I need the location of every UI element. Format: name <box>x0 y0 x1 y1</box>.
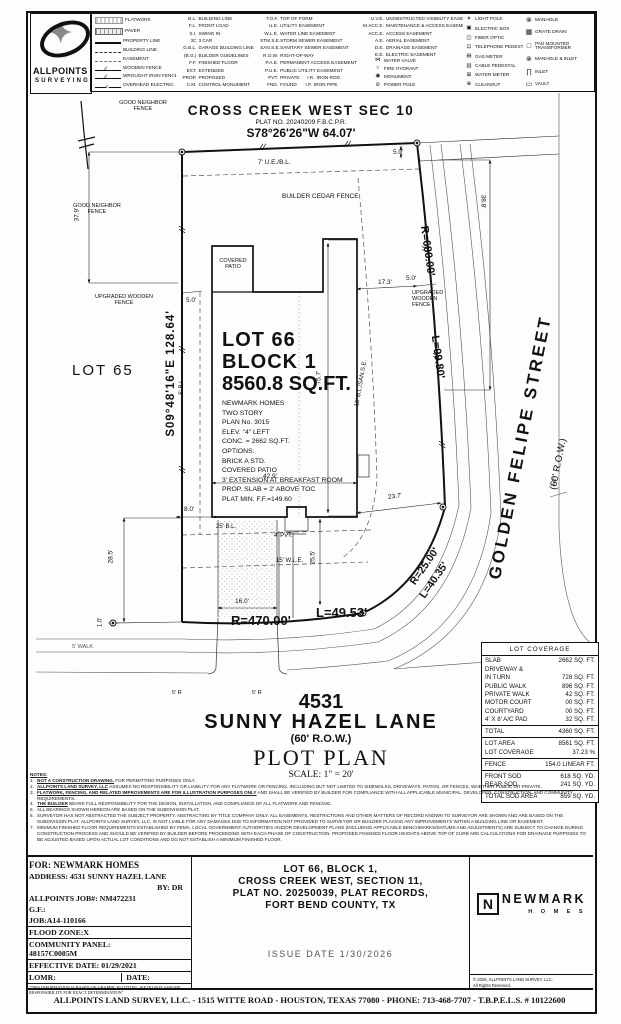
adjacent-lot-label: LOT 65 <box>72 363 134 380</box>
abbr: D.E. <box>360 46 384 51</box>
abbr: F.L. <box>178 24 196 29</box>
legend-item: PAD MOUNTED TRANSFORMER <box>525 42 590 51</box>
term: BUILDING LINE <box>198 17 232 22</box>
abbr: M.ACC.E. <box>360 24 384 29</box>
block-number: BLOCK 1 <box>222 351 317 373</box>
note-number: 7. <box>30 825 37 843</box>
term: PERMANENT ACCESS EASEMENT <box>280 61 357 66</box>
cov-label: TOTAL <box>485 728 504 735</box>
legend-label: PAD MOUNTED TRANSFORMER <box>535 42 590 51</box>
notes-section: NOTES: 1. NOT A CONSTRUCTION DRAWING. FO… <box>30 772 588 843</box>
abbr2: I.R. <box>305 76 315 81</box>
dim-8-0: 8.0' <box>184 506 194 513</box>
abbr: B.L. <box>178 17 196 22</box>
legend-label: BUILDING LINE <box>123 48 157 53</box>
cov-value: 42 SQ. FT. <box>565 691 595 698</box>
legend-label: EASEMENT <box>123 57 149 62</box>
legend-label: ELECTRIC BOX <box>475 27 509 32</box>
legend-item: STM.S.E. STORM SEWER EASEMENT <box>260 39 356 44</box>
dim-28-5: 28.5' <box>107 550 114 564</box>
newmark-homes: H O M E S <box>502 909 586 915</box>
legend-item: S.I. SWING IN <box>178 32 256 37</box>
note-lead: NOT A CONSTRUCTION DRAWING. <box>37 778 114 783</box>
legend-symbol-icon <box>525 81 533 88</box>
legend-symbol-icon <box>374 66 382 72</box>
legend-label: VAULT <box>535 82 549 87</box>
legend-item: ELECTRIC BOX <box>465 26 521 32</box>
legend-symbol-icon <box>465 54 473 60</box>
linetype-icon <box>95 17 123 24</box>
legend-item: C.M. CONTROL MONUMENT <box>178 83 256 88</box>
issue-date: ISSUE DATE 1/30/2026 <box>192 948 469 960</box>
abbr: (B.G.) <box>178 54 196 59</box>
legend-item: G.B.L. GARAGE BUILDING LINE <box>178 46 256 51</box>
legend-label: LIGHT POLE <box>475 17 503 22</box>
dim-38-8: 38.8' <box>479 195 486 209</box>
legend-symbol-icon <box>465 64 473 70</box>
legend-item: B.L. BUILDING LINE <box>178 17 256 22</box>
legend-item: POWER POLE <box>360 83 461 89</box>
legend-label: MANHOLE <box>535 18 558 23</box>
term: RIGHT-OF-WAY <box>280 54 314 59</box>
upgraded-wooden-fence-label: UPGRADED WOODENFENCE <box>84 294 164 306</box>
legend-symbol-icon <box>374 83 382 89</box>
legend-item: P.U.E. PUBLIC UTILITY EASEMENT <box>260 69 356 74</box>
abbr: W.L.E. <box>260 32 278 37</box>
note-text: BEARS FULL RESPONSIBILITY FOR THE DESIGN… <box>68 801 332 806</box>
term: DRAINAGE EASEMENT <box>386 46 438 51</box>
legend-symbol-icon <box>465 17 473 23</box>
spec-line: NEWMARK HOMES <box>222 399 343 409</box>
legend-symbol-icon <box>525 56 533 63</box>
abbr: R.O.W. <box>260 54 278 59</box>
panel-label: COMMUNITY PANEL: <box>29 940 188 949</box>
legend-item: PROP. PROPOSED <box>178 76 256 81</box>
term: EXTENDED <box>198 69 224 74</box>
legend-symbol-icon <box>465 26 473 32</box>
legend-item: GRATE DRAIN <box>525 29 590 36</box>
legend-symbol-icon <box>465 45 473 51</box>
abbr: A.E. <box>360 39 384 44</box>
linetype-icon <box>95 52 121 53</box>
spec-line: PROP. SLAB = 2' ABOVE TOC <box>222 485 343 495</box>
cov-label: SLAB <box>485 657 501 664</box>
upgraded-wooden-fence-label: UPGRADEDWOODENFENCE <box>412 290 443 308</box>
cov-value: 00 SQ. FT. <box>565 708 595 715</box>
abbr: F.F. <box>178 61 196 66</box>
legend-label: FIRE HYDRANT <box>384 67 419 72</box>
plot-plan-title: PLOT PLAN <box>166 746 476 770</box>
legend-label: CLEANOUT <box>475 83 501 88</box>
term2: IRON PIPE <box>314 83 338 88</box>
note-text: ALL BEARINGS SHOWN HEREON ARE BASED ON T… <box>37 807 200 812</box>
cov-label: PUBLIC WALK <box>485 683 526 690</box>
good-neighbor-fence-label: GOOD NEIGHBORFENCE <box>102 100 184 112</box>
term: FOUND <box>280 83 297 88</box>
power-pole-icon <box>78 101 95 169</box>
legend-symbol-icon <box>525 43 533 50</box>
builder-cedar-fence-label: BUILDER CEDAR FENCE <box>282 193 359 200</box>
walk-label: 5' WALK <box>72 644 93 650</box>
cov-value: 37.23 % <box>572 749 595 756</box>
legend-label: GAS METER <box>475 55 503 60</box>
term: FINISHED FLOOR <box>198 61 237 66</box>
address-number-title: 4531 <box>166 691 476 713</box>
legend-item: FND. FOUND I.P. IRON PIPE <box>260 83 356 88</box>
legend-symbol-icon <box>465 36 473 42</box>
logo-line2: SURVEYING <box>35 78 90 84</box>
abbr: U.V.E. <box>360 17 384 22</box>
legend-item: EASEMENT <box>95 57 174 62</box>
subdivision-title: CROSS CREEK WEST SEC 10 <box>146 104 456 119</box>
term: AERIAL EASEMENT <box>386 39 430 44</box>
term2: IRON ROD <box>317 76 340 81</box>
term: STORM SEWER EASEMENT <box>280 39 342 44</box>
cov-label: DRIVEWAY & <box>485 666 523 673</box>
abbr: PVT. <box>260 76 278 81</box>
cov-label: IN TURN <box>485 674 510 681</box>
newmark-n-icon: N <box>477 893 499 915</box>
private-walk-label: 4' PVT. <box>274 533 293 540</box>
term: TOP OF FORM <box>280 17 312 22</box>
curve-r470: R=470.00' <box>231 614 291 628</box>
gf-row: G.F.: <box>26 904 191 915</box>
utility-easement-label: 7' U.E./B.L. <box>258 159 291 166</box>
legend-item: VAULT <box>525 81 590 88</box>
linetype-icon <box>95 87 121 88</box>
legend-item: GAS METER <box>465 54 521 60</box>
job-number-row: ALLPOINTS JOB#: NM472231 <box>26 893 191 904</box>
lot-number: LOT 66 <box>222 329 296 351</box>
legend-label: INLET <box>535 70 548 75</box>
builder-brand-block: N NEWMARK H O M E S © 2026, ALLPOINTS LA… <box>469 857 593 990</box>
legend-item: F.F. FINISHED FLOOR <box>178 61 256 66</box>
legend-item: M.ACC.E. MAINTENANCE & ACCESS EASEMENT <box>360 24 461 29</box>
newmark-logo: N NEWMARK H O M E S <box>470 893 593 915</box>
note-text: SURVEYOR HAS NOT ABSTRACTED THE SUBJECT … <box>37 813 563 824</box>
cov-label: COURTYARD <box>485 708 524 715</box>
by-row: BY: DR <box>26 882 191 893</box>
cov-label: PRIVATE WALK <box>485 691 530 698</box>
linetype-icon <box>95 61 121 62</box>
note-number: 6. <box>30 813 37 825</box>
legend-item: W.L.E. WATER LINE EASEMENT <box>260 32 356 37</box>
cov-value: 8561 SQ. FT. <box>559 740 595 747</box>
abbr: ACC.E. <box>360 32 384 37</box>
legend-item: MANHOLE & INLET <box>525 56 590 63</box>
note-lead: ALLPOINTS LAND SURVEY, LLC <box>37 784 108 789</box>
street-name-title: SUNNY HAZEL LANE <box>166 711 476 733</box>
legend-symbol-icon <box>525 17 533 24</box>
abbr: EXT. <box>178 69 196 74</box>
abbr: C.M. <box>178 83 196 88</box>
legend-label: PROPERTY LINE <box>123 39 160 44</box>
term: SWING IN <box>198 32 220 37</box>
legend-symbols-col4: LIGHT POLE ELECTRIC BOX FIBER OPTIC TELE… <box>463 16 523 89</box>
abbr: STM.S.E. <box>260 39 278 44</box>
legend-label: POWER POLE <box>384 83 416 88</box>
legend-item: MANHOLE <box>525 17 590 24</box>
legend-item: EXT. EXTENDED <box>178 69 256 74</box>
cov-label: MOTOR COURT <box>485 699 532 706</box>
term: PROPOSED <box>198 76 225 81</box>
lot-area: 8560.8 SQ.FT. <box>222 373 351 395</box>
legal-line: FORT BEND COUNTY, TX <box>192 900 469 912</box>
abbr2: I.P. <box>302 83 312 88</box>
term: MAINTENANCE & ACCESS EASEMENT <box>386 24 463 29</box>
term: 3 CAR <box>198 39 212 44</box>
note-item: 6. SURVEYOR HAS NOT ABSTRACTED THE SUBJE… <box>30 813 588 825</box>
legend-item: BUILDING LINE <box>95 48 174 53</box>
legend-symbol-icon <box>525 69 533 76</box>
legend-symbol-icon <box>374 74 382 80</box>
term: UNOBSTRUCTED VISIBILITY EASEMENT <box>386 17 463 22</box>
legend-item: P.A.E. PERMANENT ACCESS EASEMENT <box>260 61 356 66</box>
abbr: U.E. <box>260 24 278 29</box>
legend-symbol-icon <box>465 82 473 88</box>
house-specs: NEWMARK HOMESTWO STORYPLAN No. 3015ELEV.… <box>222 399 343 505</box>
legend-item: D.E. DRAINAGE EASEMENT <box>360 46 461 51</box>
linetype-icon <box>95 70 121 71</box>
legend-item: U.E. UTILITY EASEMENT <box>260 24 356 29</box>
dim-1-0-left: 1.0' <box>97 618 104 628</box>
legend-item: TELEPHONE PEDESTAL <box>465 45 521 51</box>
logo-line1: ALLPOINTS <box>33 66 88 76</box>
legend-label: MANHOLE & INLET <box>535 57 577 62</box>
west-bearing: S09°48'16"E 128.64' <box>165 286 178 461</box>
dim-5-0-top: 5.0' <box>393 149 403 156</box>
legend-symbol-icon <box>465 73 473 79</box>
abbr: FND. <box>260 83 278 88</box>
abbr: S.I. <box>178 32 196 37</box>
note-item: 3. FLATWORK, FENCING, AND RELATED IMPROV… <box>30 790 588 802</box>
legend-item: CABLE PEDESTAL <box>465 64 521 70</box>
term: UTILITY EASEMENT <box>280 24 324 29</box>
legend-symbol-icon <box>374 58 382 64</box>
community-panel-row: COMMUNITY PANEL: 48157C0085M <box>26 939 191 960</box>
spec-line: TWO STORY <box>222 409 343 419</box>
legend-item: PAVER <box>95 28 174 35</box>
legend-symbols-col5: MANHOLE GRATE DRAIN PAD MOUNTED TRANSFOR… <box>523 16 592 89</box>
term: ACCESS EASEMENT <box>386 32 432 37</box>
building-line-5: 5' B.L. <box>179 378 186 395</box>
legend-item: WATER METER <box>465 73 521 79</box>
spec-line: CONC. = 2662 SQ.FT. <box>222 437 343 447</box>
curve-l49-53: L=49.53' <box>316 606 367 620</box>
survey-drawing: CROSS CREEK WEST SEC 10 PLAT NO. 2024020… <box>26 93 593 855</box>
dim-42-9: 42.9' <box>263 473 277 480</box>
swoosh-icon <box>35 13 92 64</box>
legend-label: WATER METER <box>475 73 509 78</box>
term: GARAGE BUILDING LINE <box>198 46 253 51</box>
legend-item: F.L. FRONT LOAD <box>178 24 256 29</box>
spec-line: COVERED PATIO <box>222 466 343 476</box>
term: CONTROL MONUMENT <box>198 83 250 88</box>
legal-description-block: LOT 66, BLOCK 1, CROSS CREEK WEST, SECTI… <box>192 857 469 990</box>
legend-abbrev-col3: U.V.E. UNOBSTRUCTED VISIBILITY EASEMENT … <box>358 16 463 89</box>
project-info-block: FOR: NEWMARK HOMES ADDRESS: 4531 SUNNY H… <box>26 857 192 990</box>
legend-item: R.O.W. RIGHT-OF-WAY <box>260 54 356 59</box>
cov-label: LOT COVERAGE <box>485 749 534 756</box>
linetype-icon <box>95 28 123 35</box>
street-row-title: (60' R.O.W.) <box>166 733 476 745</box>
dim-75-7: 75.7' <box>315 371 322 385</box>
legend-label: WROUGHT IRON FENCE <box>123 74 176 79</box>
surveyor-footer: ALLPOINTS LAND SURVEY, LLC. - 1515 WITTE… <box>26 988 593 1012</box>
lomr-row: LOMR: DATE: <box>26 972 191 984</box>
legend-item: U.V.E. UNOBSTRUCTED VISIBILITY EASEMENT <box>360 17 461 22</box>
client-row: FOR: NEWMARK HOMES <box>26 857 191 871</box>
legend-label: OVERHEAD ELECTRIC <box>123 83 174 88</box>
term: SANITARY SEWER EASEMENT <box>280 46 349 51</box>
legend-item: FLATWORK <box>95 17 174 24</box>
legend-label: TELEPHONE PEDESTAL <box>475 45 523 50</box>
cov-label: LOT AREA <box>485 740 515 747</box>
note-item: 7. MINIMUM FINISHED FLOOR REQUIREMENTS E… <box>30 825 588 843</box>
legend-item: PROPERTY LINE <box>95 38 174 44</box>
covered-patio-label: COVEREDPATIO <box>212 258 254 270</box>
job2-row: JOB:A14-110166 <box>26 915 191 927</box>
spec-line: PLAT MIN. F.F.=149.60 <box>222 495 343 505</box>
legend-item: SAN.S.E. SANITARY SEWER EASEMENT <box>260 46 356 51</box>
legend-item: (B.G.) BUILDER GUIDELINES <box>178 54 256 59</box>
abbr: SAN.S.E. <box>260 46 278 51</box>
legend: FLATWORK PAVER PROPERTY LINE BUILDING LI… <box>90 13 595 92</box>
note-number: 3. <box>30 790 37 802</box>
cov-value: 2662 SQ. FT. <box>559 657 595 664</box>
cov-value: 154.0 LINEAR FT. <box>545 761 595 768</box>
legend-item: INLET <box>525 69 590 76</box>
dim-25-5: 25.5' <box>309 551 316 565</box>
dim-5-0-left: 5.0' <box>186 297 196 304</box>
abbr: G.B.L. <box>178 46 196 51</box>
building-line-25: 25' B.L. <box>216 524 236 531</box>
cov-value: 728 SQ. FT. <box>562 674 595 681</box>
abbr: T.O.F. <box>260 17 278 22</box>
abbr: PROP. <box>178 76 196 81</box>
abbr: P.U.E. <box>260 69 278 74</box>
cov-value: 32 SQ. FT. <box>565 716 595 723</box>
allpoints-logo: ✦ ALLPOINTS SURVEYING <box>30 13 92 94</box>
legend-item: A.E. AERIAL EASEMENT <box>360 39 461 44</box>
newmark-name: NEWMARK <box>502 893 586 906</box>
abbr: 3C <box>178 39 196 44</box>
legend-abbrev-col2: T.O.F. TOP OF FORM U.E. UTILITY EASEMENT… <box>258 16 358 89</box>
panel-value: 48157C0085M <box>29 949 188 958</box>
spec-line: BRICK A STD. <box>222 457 343 467</box>
linetype-icon <box>95 78 121 79</box>
legend-symbol-icon <box>525 29 533 36</box>
legend-item: WATER VALVE <box>360 58 461 64</box>
note-text: ASSUMES NO RESPONSIBILITY OR LIABILITY F… <box>108 784 542 789</box>
lot-coverage-title: LOT COVERAGE <box>482 643 598 656</box>
term: PUBLIC UTILITY EASEMENT <box>280 69 343 74</box>
cov-value: 00 SQ. FT. <box>565 699 595 706</box>
legend-item: FIRE HYDRANT <box>360 66 461 72</box>
dim-16-0: 16.0' <box>235 598 249 605</box>
spec-line: OPTIONS: <box>222 447 343 457</box>
legend-item: T.O.F. TOP OF FORM <box>260 17 356 22</box>
flood-zone-row: FLOOD ZONE:X <box>26 927 191 939</box>
cov-value: 4360 SQ. FT. <box>559 728 595 735</box>
abbr: P.A.E. <box>260 61 278 66</box>
good-neighbor-fence-label: GOOD NEIGHBORFENCE <box>56 203 138 215</box>
legend-item: MONUMENT <box>360 74 461 80</box>
legend-item: 3C 3 CAR <box>178 39 256 44</box>
title-block-row: FOR: NEWMARK HOMES ADDRESS: 4531 SUNNY H… <box>26 855 593 990</box>
legend-label: WATER VALVE <box>384 59 416 64</box>
north-bearing: S78°26'26"W 64.07' <box>146 127 456 140</box>
dim-5-0-right: 5.0' <box>406 275 416 282</box>
term: FRONT LOAD <box>198 24 228 29</box>
legend-label: GRATE DRAIN <box>535 30 567 35</box>
legal-line: CROSS CREEK WEST, SECTION 11, <box>192 876 469 888</box>
spec-line: 3' EXTENSION AT BREAKFAST ROOM <box>222 476 343 486</box>
legend-item: ACC.E. ACCESS EASEMENT <box>360 32 461 37</box>
legend-item: WOODEN FENCE <box>95 66 174 71</box>
legend-item: LIGHT POLE <box>465 17 521 23</box>
plot-plan-page: ✦ ALLPOINTS SURVEYING FLATWORK PAVER PRO… <box>0 0 621 1024</box>
cov-label: 4' X 8' A/C PAD <box>485 716 527 723</box>
note-text: MINIMUM FINISHED FLOOR REQUIREMENTS ESTA… <box>37 825 586 842</box>
note-text: FOR PERMITTING PURPOSES ONLY. <box>114 778 196 783</box>
cov-label: FENCE <box>485 761 506 768</box>
note-lead: THE BUILDER <box>37 801 68 806</box>
lomr-label: LOMR: <box>29 973 122 982</box>
legend-label: PAVER <box>125 29 140 34</box>
cov-value: 896 SQ. FT. <box>562 683 595 690</box>
spec-line: ELEV. "4" LEFT <box>222 428 343 438</box>
note-lead: FLATWORK, FENCING, AND RELATED IMPROVEME… <box>37 790 256 795</box>
legend-label: FIBER OPTIC <box>475 36 504 41</box>
legend-item: OVERHEAD ELECTRIC <box>95 83 174 88</box>
effective-date-row: EFFECTIVE DATE: 01/29/2021 <box>26 960 191 972</box>
address-row: ADDRESS: 4531 SUNNY HAZEL LANE <box>26 871 191 882</box>
legend-abbrev-col1: B.L. BUILDING LINE F.L. FRONT LOAD S.I. … <box>176 16 258 89</box>
dim-37-9: 37.9' <box>73 208 80 222</box>
linetype-icon <box>95 42 121 44</box>
legal-line: LOT 66, BLOCK 1, <box>192 864 469 876</box>
legend-label: FLATWORK <box>125 18 151 23</box>
legal-line: PLAT NO. 20250039, PLAT RECORDS, <box>192 888 469 900</box>
term: PRIVATE <box>280 76 299 81</box>
legend-item: CLEANOUT <box>465 82 521 88</box>
legend-linetypes: FLATWORK PAVER PROPERTY LINE BUILDING LI… <box>93 16 176 89</box>
legend-label: MONUMENT <box>384 75 412 80</box>
legend-item: PVT. PRIVATE I.R. IRON ROD <box>260 76 356 81</box>
term: BUILDER GUIDELINES <box>198 54 248 59</box>
dim-17-3: 17.3' <box>378 279 392 286</box>
term: WATER LINE EASEMENT <box>280 32 335 37</box>
date-label: DATE: <box>122 973 150 982</box>
legend-item: FIBER OPTIC <box>465 36 521 42</box>
legend-item: WROUGHT IRON FENCE <box>95 74 174 79</box>
spec-line: PLAN No. 3015 <box>222 418 343 428</box>
legend-label: WOODEN FENCE <box>123 66 162 71</box>
water-line-easement-label: 15' W.L.E. <box>276 558 303 565</box>
legend-label: CABLE PEDESTAL <box>475 64 516 69</box>
